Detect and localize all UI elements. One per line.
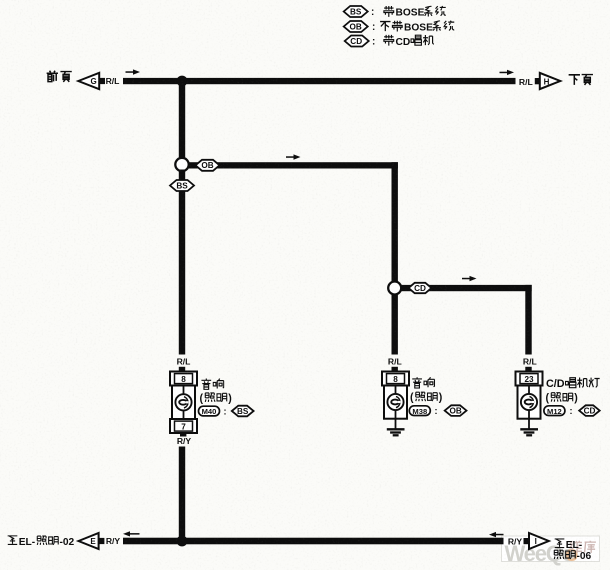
svg-text:CD: CD <box>396 37 411 48</box>
svg-text:BS: BS <box>350 7 362 16</box>
svg-text:BS: BS <box>237 407 249 416</box>
svg-text:8: 8 <box>181 375 186 384</box>
svg-text:OB: OB <box>201 161 213 170</box>
svg-text:R/L: R/L <box>177 356 191 366</box>
svg-text:CD: CD <box>414 284 426 293</box>
svg-text:): ) <box>439 392 443 404</box>
svg-text::: : <box>224 406 227 416</box>
svg-text:BOSE: BOSE <box>396 7 425 18</box>
svg-text:): ) <box>228 392 232 404</box>
svg-text:C/D: C/D <box>546 378 565 390</box>
svg-text:G: G <box>90 77 96 86</box>
svg-text:(: ( <box>200 392 204 404</box>
svg-text::: : <box>372 37 375 48</box>
svg-text:R/Y: R/Y <box>508 536 523 546</box>
svg-text:R/L: R/L <box>388 356 402 366</box>
svg-text:R/L: R/L <box>523 356 537 366</box>
svg-text:EL-: EL- <box>566 540 582 551</box>
svg-text:): ) <box>574 392 578 404</box>
svg-text:M40: M40 <box>202 407 217 416</box>
svg-text:-06: -06 <box>577 551 592 562</box>
svg-text:BS: BS <box>176 181 188 190</box>
svg-text::: : <box>372 22 375 33</box>
svg-text:8: 8 <box>393 375 398 384</box>
svg-text:M12: M12 <box>547 407 562 416</box>
svg-text:23: 23 <box>524 375 534 384</box>
svg-text:E: E <box>90 537 96 546</box>
svg-text::: : <box>371 7 374 18</box>
svg-text:BOSE: BOSE <box>404 22 433 33</box>
svg-text:R/Y: R/Y <box>106 536 121 546</box>
svg-text:OB: OB <box>449 407 461 416</box>
svg-text:R/Y: R/Y <box>177 436 192 446</box>
svg-text:CD: CD <box>350 37 362 46</box>
svg-text:7: 7 <box>181 422 186 431</box>
svg-text:(: ( <box>546 392 550 404</box>
svg-text:-02: -02 <box>60 537 75 548</box>
svg-text::: : <box>570 406 573 416</box>
svg-text:H: H <box>544 77 550 86</box>
svg-text:R/L: R/L <box>519 77 533 87</box>
svg-text:M38: M38 <box>412 407 427 416</box>
svg-text:(: ( <box>410 392 414 404</box>
svg-text::: : <box>435 406 438 416</box>
svg-text:R/L: R/L <box>106 76 120 86</box>
svg-text:I: I <box>535 537 537 546</box>
svg-text:CD: CD <box>584 407 596 416</box>
svg-text:OB: OB <box>350 22 362 31</box>
svg-text:EL-: EL- <box>19 537 35 548</box>
